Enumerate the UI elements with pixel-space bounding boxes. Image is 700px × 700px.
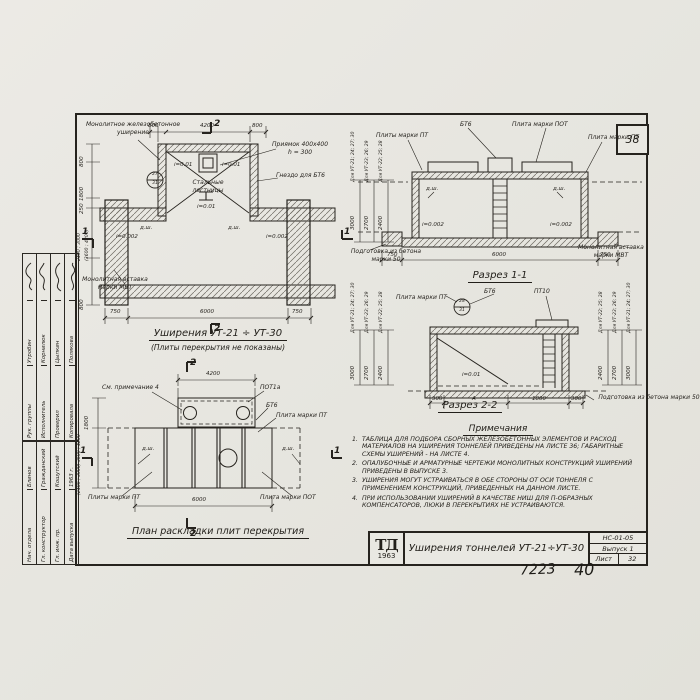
hcol-r-label-1: Для УТ-22; 25; 28	[599, 291, 604, 333]
hcol-val-2: 2700	[364, 216, 370, 230]
label-bt6: БТ6	[484, 288, 496, 296]
sig-role: Исполнитель	[41, 365, 47, 440]
note-text: Уширения могут устраиваться в обе сторон…	[362, 477, 644, 493]
section-1-1-title: Разрез 1-1	[450, 270, 550, 281]
joint-right: д.ш.	[228, 225, 240, 233]
dim-6000: 6000	[492, 252, 506, 260]
doc-code: НС-01-05	[590, 533, 646, 544]
hcol-l-label-2: Для УТ-23; 26; 29	[365, 291, 370, 333]
slope-pit-left: i=0.01	[174, 162, 192, 170]
section-mark-1-left: 1	[82, 227, 88, 237]
slope-left: i=0.002	[116, 234, 138, 242]
title-block-right: НС-01-05 Выпуск 1 Лист 32	[588, 533, 646, 564]
dim-left-width-a: 2400 ; 3000	[77, 233, 82, 261]
signature-squiggle	[39, 254, 49, 300]
title-block: ТД 1963 Уширения тоннелей УТ-21÷УТ-30 НС…	[368, 531, 648, 566]
sig-name: Полякова	[69, 300, 75, 365]
section-mark-2-top: 2	[214, 119, 220, 129]
dim-750l: 750	[387, 252, 398, 260]
signature-row: Копировала Полякова	[65, 254, 78, 440]
drawing-title: Уширения тоннелей УТ-21÷УТ-30	[405, 533, 588, 564]
hcol-r-label-3: Для УТ-21; 24; 27; 30	[627, 283, 632, 333]
handwritten-7223: 7223	[520, 561, 556, 578]
sig-name: 1963 г.	[69, 442, 75, 489]
note-number: 4.	[352, 495, 362, 511]
label-socket: Гнездо для БТ6	[276, 172, 325, 180]
slope-center: i=0.01	[197, 204, 215, 212]
dim-left-800t: 800	[79, 156, 85, 167]
dim-left-800b: 800	[79, 299, 85, 310]
dim-1800: 1800	[84, 416, 90, 430]
label-plate-pt: Плита марки ПТ	[396, 294, 447, 302]
slope-pit-right: i=0.01	[222, 162, 240, 170]
sig-name: Кошутский	[55, 442, 61, 489]
dim-top-800r: 800	[252, 123, 263, 131]
sig-role: Гл. конструктор	[41, 489, 47, 564]
node-ref-sheet: 31	[149, 181, 161, 186]
note-text: Таблица для подбора сборных железобетонн…	[362, 436, 644, 459]
dim-bot-750l: 750	[110, 309, 121, 317]
dim-750r: 750	[600, 252, 611, 260]
dim-left-250: 250	[79, 203, 85, 214]
dim-top-4200: 4200	[200, 123, 214, 131]
hcol-r-val-1: 2400	[598, 366, 604, 380]
label-prep: Подготовка из бетона марки 50	[350, 248, 422, 263]
hcol-r-label-2: Для УТ-23; 26; 29	[613, 291, 618, 333]
signature-squiggle	[53, 254, 63, 300]
notes-header: Примечания	[352, 424, 644, 434]
dim-300r: 300	[571, 396, 582, 404]
dim-bot-6000: 6000	[200, 309, 214, 317]
joint-right: д.ш.	[553, 186, 565, 194]
sig-role: Проверил	[55, 365, 61, 440]
joint-right: д.ш.	[282, 446, 294, 454]
slope-left: i=0.002	[422, 222, 444, 230]
section-mark-2-top: 2	[190, 358, 196, 368]
slope-right: i=0.002	[550, 222, 572, 230]
logo-year: 1963	[378, 552, 396, 560]
hcol-l-label-3: Для УТ-22; 25; 28	[379, 291, 384, 333]
plan-title: Уширения УТ-21 ÷ УТ-30	[118, 328, 318, 339]
signature-row: Гл. инж. пр. Кошутский	[51, 442, 65, 564]
hcol-l-label-1: Для УТ-21; 24; 27; 30	[351, 283, 356, 333]
plan-slab-layout: См. примечание 4 ПОТ1а БТ6 Плита марки П…	[80, 358, 355, 553]
note-item: 1. Таблица для подбора сборных железобет…	[352, 436, 644, 459]
label-pt10: ПТ10	[534, 288, 550, 296]
signature-row: Рук. группы Утробин	[23, 254, 37, 440]
label-insert: Монолитная вставка марки МВТ	[574, 244, 648, 259]
signature-row: Проверил Цыпкин	[51, 254, 65, 440]
section-1-1: БТ6 Плита марки ПОТ Плиты марки ПТ Плита…	[350, 120, 648, 288]
sig-name: Цыпкин	[55, 300, 61, 365]
label-bt6: БТ6	[266, 402, 278, 410]
sheet-word: Лист	[590, 554, 619, 564]
label-see-note: См. примечание 4	[102, 384, 159, 392]
node-ref-top: 28	[456, 299, 468, 304]
section-2-2-title: Разрез 2-2	[410, 400, 530, 411]
signature-squiggle	[25, 254, 35, 300]
hcol-val-1: 3000	[350, 216, 356, 230]
hcol-label-3: Для УТ-22; 25; 28	[379, 140, 384, 182]
label-plate-pt: Плита марки ПТ	[276, 412, 327, 420]
note-text: При использовании уширений в качестве ни…	[362, 495, 644, 511]
node-ref-top: 27	[149, 172, 161, 177]
plan-subtitle: (Плиты перекрытия не показаны)	[118, 343, 318, 352]
joint-left: д.ш.	[142, 446, 154, 454]
section-mark-1-left: 1	[80, 446, 86, 456]
label-plate-pot: Плита марки ПОТ	[512, 121, 568, 129]
sig-name: Гражданский	[41, 442, 47, 489]
hcol-val-3: 2400	[378, 216, 384, 230]
signature-squiggle	[67, 254, 77, 300]
dim-6000: 6000	[192, 497, 206, 505]
label-plate-pot: Плита марки ПОТ	[260, 494, 316, 502]
note-text: Опалубочные и арматурные чертежи монолит…	[362, 460, 644, 476]
issue-label: Выпуск 1	[590, 544, 646, 555]
handwritten-40: 40	[574, 560, 595, 580]
signature-row: Гл. конструктор Гражданский	[37, 442, 51, 564]
label-prep: Подготовка из бетона марки 50	[594, 394, 700, 402]
label-plates-pt: Плиты марки ПТ	[376, 132, 428, 140]
notes-block: Примечания 1. Таблица для подбора сборны…	[352, 424, 644, 510]
sig-role: Копировала	[69, 365, 75, 440]
sig-name: Корнилюк	[41, 300, 47, 365]
note-item: 3. Уширения могут устраиваться в обе сто…	[352, 477, 644, 493]
plan-slab-title: План раскладки плит перекрытия	[108, 526, 328, 537]
logo-td: ТД 1963	[370, 533, 405, 564]
sig-name: Утробин	[27, 300, 33, 365]
note-item: 4. При использовании уширений в качестве…	[352, 495, 644, 511]
label-plates-pt: Плиты марки ПТ	[88, 494, 140, 502]
signature-row: Нач. отдела Блинов	[23, 442, 37, 564]
joint-left: д.ш.	[426, 186, 438, 194]
dim-1800: 1800	[532, 396, 546, 404]
hcol-l-val-2: 2700	[364, 366, 370, 380]
hcol-l-val-3: 2400	[378, 366, 384, 380]
label-pit-depth: h = 300	[288, 149, 312, 157]
joint-left: д.ш.	[140, 225, 152, 233]
plan-widening: Монолитное железобетонное уширение Приям…	[80, 118, 355, 363]
logo-letters: ТД	[375, 538, 398, 552]
signature-table-lower: Нач. отдела Блинов Гл. конструктор Гражд…	[22, 441, 79, 565]
sig-role: Рук. группы	[27, 365, 33, 440]
note-number: 3.	[352, 477, 362, 493]
hcol-r-val-3: 3000	[626, 366, 632, 380]
drawing-sheet: 38 Рук. группы Утробин Исполнитель Корни…	[0, 0, 700, 700]
hcol-r-val-2: 2700	[612, 366, 618, 380]
dim-top-800l: 800	[148, 123, 159, 131]
label-plate-pt: Плита марки ПТ	[588, 134, 639, 142]
note-number: 1.	[352, 436, 362, 459]
sheet-number: 32	[619, 554, 647, 564]
dim-bot-750r: 750	[292, 309, 303, 317]
node-ref-sheet: 31	[456, 308, 468, 313]
sig-name: Блинов	[27, 442, 33, 489]
dim-4200: 4200	[206, 371, 220, 379]
label-pit: Приямок 400х400	[272, 141, 328, 149]
label-pot1a: ПОТ1а	[260, 384, 280, 392]
label-bt6: БТ6	[460, 121, 472, 129]
hcol-label-1: Для УТ-21; 24; 27; 30	[351, 132, 356, 182]
hcol-label-2: Для УТ-23; 26; 29	[365, 140, 370, 182]
sig-role: Нач. отдела	[27, 489, 33, 564]
section-mark-1-right: 1	[334, 446, 340, 456]
note-number: 2.	[352, 460, 362, 476]
label-stairs: Стальные лестницы	[184, 179, 232, 194]
label-widening: Монолитное железобетонное уширение	[80, 121, 186, 136]
sheet-row: Лист 32	[590, 554, 646, 564]
note-item: 2. Опалубочные и арматурные чертежи моно…	[352, 460, 644, 476]
signature-table-upper: Рук. группы Утробин Исполнитель Корнилюк…	[22, 253, 79, 441]
signature-row: Исполнитель Корнилюк	[37, 254, 51, 440]
slope-right: i=0.002	[266, 234, 288, 242]
sig-role: Гл. инж. пр.	[55, 489, 61, 564]
dim-left-1800: 1800	[79, 187, 85, 201]
section-2-2: Плита марки ПТ БТ6 ПТ10 28 31 i=0.01 Для…	[350, 288, 648, 423]
sig-role: Дата выпуска	[69, 489, 75, 564]
dim-width-options: (2400 ; 3000) 3600 ; 4200	[77, 434, 82, 495]
label-insert: Монолитная вставка марки МВТ	[80, 276, 150, 291]
slope-label: i=0.01	[462, 372, 480, 380]
